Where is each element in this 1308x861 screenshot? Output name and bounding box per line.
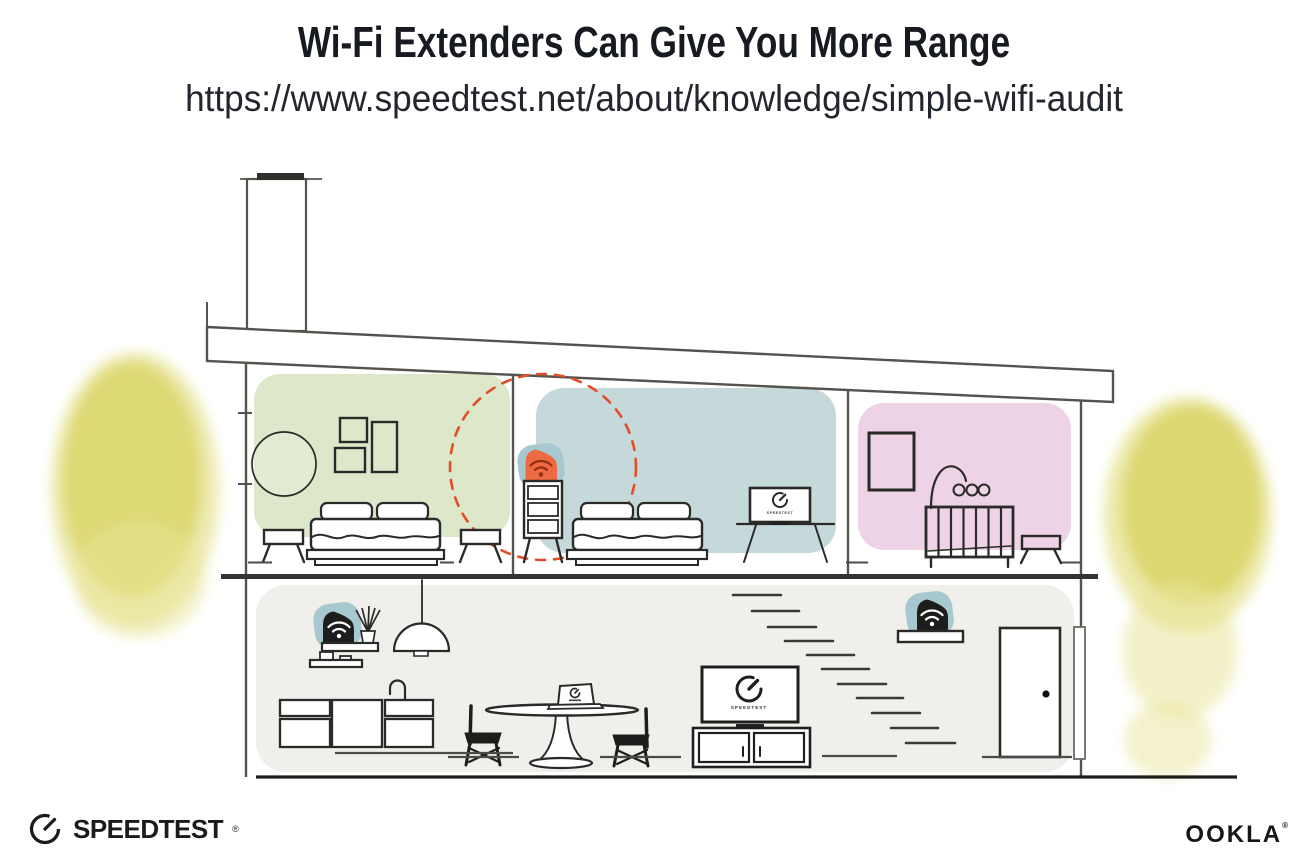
wall-shelf	[322, 643, 378, 651]
living-room-tv-label: SPEEDTEST	[731, 705, 767, 710]
front-door-group	[1000, 628, 1060, 757]
nightstand-left	[263, 530, 304, 562]
front-door	[1000, 628, 1060, 757]
pillow	[638, 503, 690, 520]
round-mirror	[252, 432, 316, 496]
pillow	[321, 503, 372, 520]
wall-shelf	[898, 631, 963, 642]
bed-base	[567, 550, 707, 559]
living-room-tv	[702, 667, 798, 722]
pillow	[581, 503, 633, 520]
bedroom-tv-label: SPEEDTEST	[767, 511, 794, 515]
bed-base	[576, 559, 698, 565]
mattress	[311, 519, 440, 550]
tree-left	[51, 352, 219, 638]
ookla-wordmark: OOKLA	[1185, 821, 1282, 848]
nightstand-right	[460, 530, 501, 562]
infographic-page: Wi-Fi Extenders Can Give You More Range …	[0, 0, 1308, 861]
house-cross-section-illustration: SPEEDTEST	[0, 0, 1308, 861]
speedtest-wordmark: SPEEDTEST	[73, 814, 223, 845]
tree-right	[1104, 397, 1272, 778]
table-base	[530, 758, 592, 768]
ookla-logo: OOKLA®	[1185, 821, 1290, 849]
living-room-tv-group: SPEEDTEST	[693, 667, 810, 767]
upper-floor-slab	[221, 574, 1098, 579]
bed-base	[307, 550, 444, 559]
wall-shelf	[310, 660, 362, 667]
door-knob	[1042, 690, 1049, 697]
chimney	[240, 173, 322, 331]
bedroom-tv: SPEEDTEST	[750, 488, 810, 525]
ookla-trademark: ®	[1282, 821, 1290, 830]
nursery-stool	[1021, 536, 1061, 563]
bed-base	[315, 559, 437, 565]
downspout	[1074, 627, 1085, 759]
speedtest-gauge-icon	[26, 810, 64, 848]
pillow	[377, 503, 428, 520]
bed	[567, 503, 707, 565]
speedtest-trademark: ®	[232, 824, 239, 834]
mattress	[573, 519, 702, 550]
tv-console	[693, 728, 810, 767]
speedtest-logo: SPEEDTEST®	[26, 810, 239, 848]
